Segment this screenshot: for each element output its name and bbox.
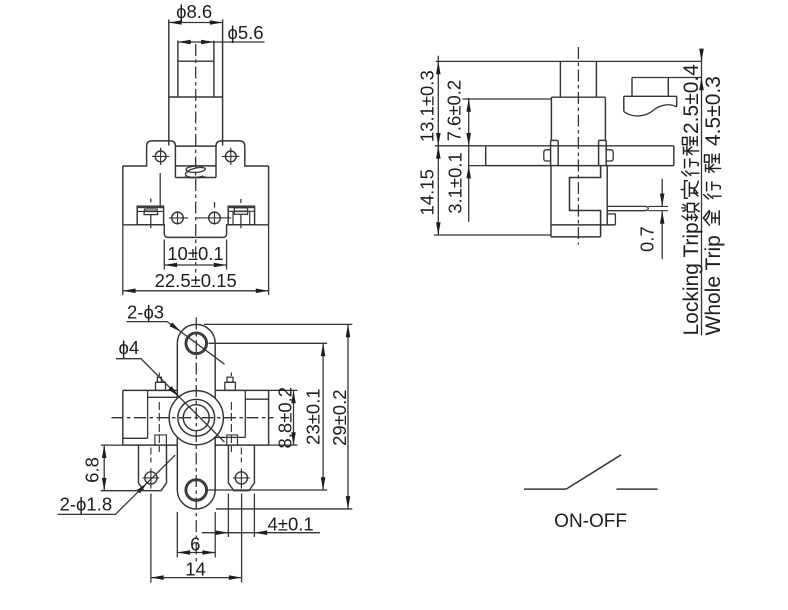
svg-text:0.7: 0.7 <box>637 226 658 252</box>
svg-text:10±0.1: 10±0.1 <box>167 243 223 264</box>
svg-text:4±0.1: 4±0.1 <box>268 514 314 535</box>
svg-text:6.8: 6.8 <box>82 457 103 483</box>
svg-text:3.1±0.1: 3.1±0.1 <box>445 152 466 214</box>
svg-text:ϕ5.6: ϕ5.6 <box>227 22 263 43</box>
svg-text:8.8±0.2: 8.8±0.2 <box>274 387 295 449</box>
svg-text:14.15: 14.15 <box>417 169 438 215</box>
svg-text:6: 6 <box>190 534 200 555</box>
svg-text:13.1±0.3: 13.1±0.3 <box>417 70 438 142</box>
svg-text:2.5±0.4: 2.5±0.4 <box>680 64 703 134</box>
svg-text:ON-OFF: ON-OFF <box>554 511 627 532</box>
svg-text:29±0.2: 29±0.2 <box>329 389 350 445</box>
svg-text:4.5±0.3: 4.5±0.3 <box>702 76 725 146</box>
svg-text:Locking Trip: Locking Trip <box>680 222 703 335</box>
svg-text:23±0.1: 23±0.1 <box>302 388 323 444</box>
svg-text:22.5±0.15: 22.5±0.15 <box>155 270 237 291</box>
svg-text:2-ϕ3: 2-ϕ3 <box>127 301 164 322</box>
svg-text:7.6±0.2: 7.6±0.2 <box>444 80 465 142</box>
svg-text:14: 14 <box>185 559 206 580</box>
svg-text:ϕ4: ϕ4 <box>119 337 140 358</box>
svg-text:2-ϕ1.8: 2-ϕ1.8 <box>60 493 113 514</box>
svg-text:ϕ8.6: ϕ8.6 <box>176 1 212 22</box>
svg-text:Whole Trip: Whole Trip <box>702 235 725 335</box>
